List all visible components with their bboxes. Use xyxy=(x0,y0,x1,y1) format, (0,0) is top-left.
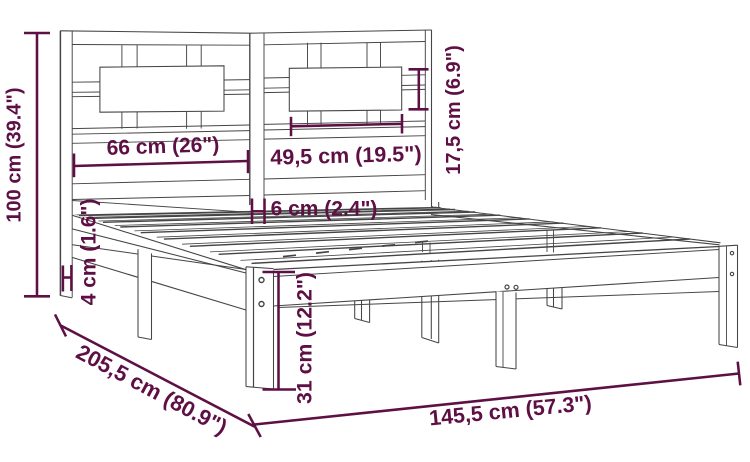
svg-text:66 cm (26"): 66 cm (26") xyxy=(106,133,219,160)
svg-text:17,5 cm (6.9"): 17,5 cm (6.9") xyxy=(443,45,465,175)
svg-text:31 cm (12.2"): 31 cm (12.2") xyxy=(293,272,317,404)
svg-text:100 cm (39.4"): 100 cm (39.4") xyxy=(3,87,25,222)
svg-text:205,5 cm (80.9"): 205,5 cm (80.9") xyxy=(72,339,231,439)
svg-text:49,5 cm (19.5"): 49,5 cm (19.5") xyxy=(270,142,422,170)
svg-text:6 cm (2.4"): 6 cm (2.4") xyxy=(271,198,378,221)
svg-text:4 cm (1.6"): 4 cm (1.6") xyxy=(78,199,101,306)
